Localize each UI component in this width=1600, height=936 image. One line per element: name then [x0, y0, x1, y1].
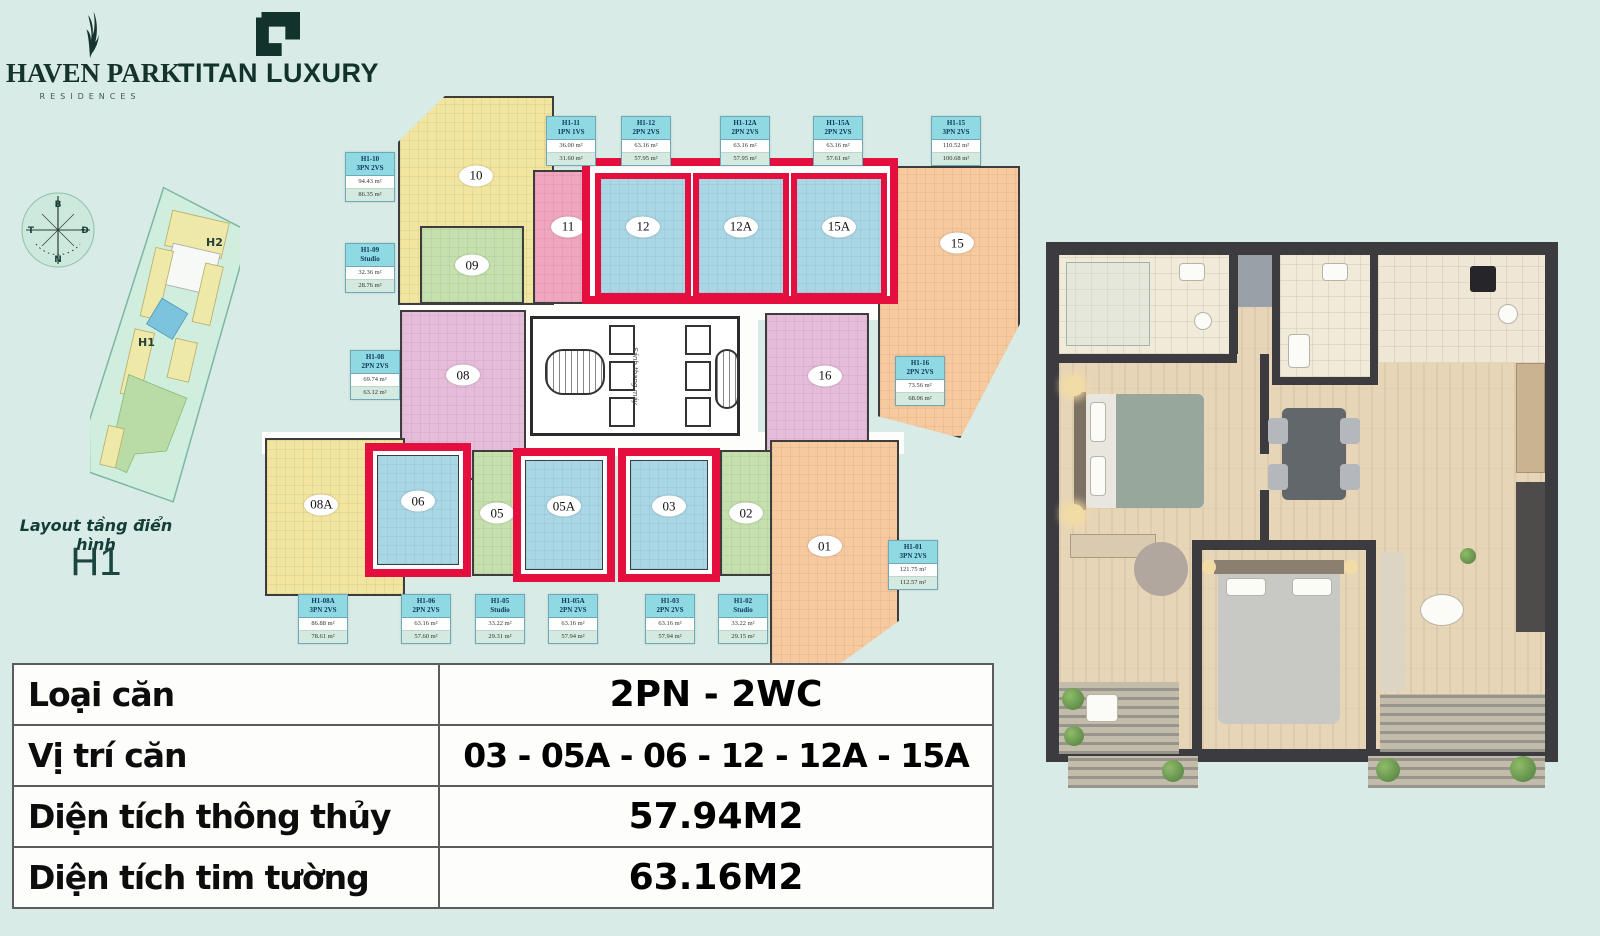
toilet: [1179, 263, 1205, 281]
badge-area-net: 57.95 m²: [721, 153, 769, 165]
wall: [1272, 377, 1378, 385]
site-map-label-h2: H2: [206, 236, 223, 249]
unit-info-badge-H1-12A: H1-12A2PN 2VS63.16 m²57.95 m²: [720, 116, 770, 166]
unit-01: 01: [770, 440, 899, 666]
badge-type: 2PN 2VS: [622, 128, 670, 137]
unit-number: 05A: [547, 496, 581, 517]
badge-area-net: 57.60 m²: [402, 631, 450, 643]
highlight-box-top: 12 12A 15A: [582, 158, 898, 304]
washer: [1086, 694, 1118, 722]
tv-console: [1516, 482, 1545, 632]
toilet: [1322, 263, 1348, 281]
unit-number: 12A: [724, 216, 758, 237]
badge-type: 2PN 2VS: [549, 606, 597, 615]
unit-number: 01: [808, 536, 842, 557]
badge-area-gross: 36.00 m²: [547, 140, 595, 153]
sink: [1194, 312, 1212, 330]
compass-icon: B N T Đ: [20, 190, 96, 270]
haven-park-logo: HAVEN PARK RESIDENCES: [6, 8, 174, 101]
badge-area-gross: 63.16 m²: [622, 140, 670, 153]
titan-luxury-logo: TITAN LUXURY: [178, 12, 378, 89]
site-map-label-h1: H1: [138, 336, 155, 349]
unit-info-badge-H1-08A: H1-08A3PN 2VS86.88 m²78.61 m²: [298, 594, 348, 644]
badge-type: 2PN 2VS: [351, 362, 399, 371]
haven-park-subtitle: RESIDENCES: [6, 92, 174, 101]
elevator-core: Sảnh thang máy: [530, 316, 740, 436]
pillow: [1292, 578, 1332, 596]
stairs-icon: [545, 349, 605, 395]
page: HAVEN PARK RESIDENCES TITAN LUXURY B N T…: [0, 0, 1600, 936]
unit-info-badge-H1-05A: H1-05A2PN 2VS63.16 m²57.94 m²: [548, 594, 598, 644]
tree-icon: [79, 8, 101, 58]
badge-area-net: 29.15 m²: [719, 631, 767, 643]
unit-03: 03: [630, 460, 708, 570]
badge-code: H1-09: [346, 246, 394, 255]
unit-number: 03: [652, 496, 686, 517]
wall: [1366, 540, 1376, 754]
unit-15A: 15A: [791, 173, 887, 299]
shower-glass: [1066, 262, 1150, 346]
badge-type: 2PN 2VS: [721, 128, 769, 137]
apartment-3d-render: [1046, 242, 1558, 788]
badge-code: H1-15A: [814, 119, 862, 128]
compass-west: T: [28, 226, 35, 236]
badge-area-net: 78.61 m²: [299, 631, 347, 643]
badge-type: Studio: [476, 606, 524, 615]
badge-code: H1-02: [719, 597, 767, 606]
badge-code: H1-03: [646, 597, 694, 606]
badge-code: H1-08: [351, 353, 399, 362]
badge-type: 2PN 2VS: [646, 606, 694, 615]
row-label: Diện tích tim tường: [14, 848, 440, 907]
rug: [1134, 542, 1188, 596]
badge-code: H1-10: [346, 155, 394, 164]
badge-area-gross: 63.16 m²: [646, 618, 694, 631]
headboard: [1074, 392, 1086, 510]
kitchen-cabinet: [1516, 363, 1545, 473]
badge-area-net: 31.60 m²: [547, 153, 595, 165]
badge-area-net: 112.57 m²: [889, 577, 937, 589]
lamp: [1344, 560, 1358, 574]
chair: [1268, 464, 1288, 490]
unit-number: 15: [940, 233, 974, 254]
badge-area-net: 68.06 m²: [896, 393, 944, 405]
unit-info-badge-H1-15A: H1-15A2PN 2VS63.16 m²57.61 m²: [813, 116, 863, 166]
badge-area-gross: 69.74 m²: [351, 374, 399, 387]
cooktop: [1470, 266, 1496, 292]
badge-area-gross: 63.16 m²: [402, 618, 450, 631]
unit-number: 02: [729, 503, 763, 524]
badge-area-net: 86.35 m²: [346, 189, 394, 201]
unit-info-badge-H1-02: H1-02Studio33.22 m²29.15 m²: [718, 594, 768, 644]
deck-area: [1380, 694, 1545, 752]
badge-code: H1-11: [547, 119, 595, 128]
badge-code: H1-08A: [299, 597, 347, 606]
badge-area-net: 28.76 m²: [346, 280, 394, 292]
plant: [1162, 760, 1184, 782]
row-value: 63.16M2: [440, 848, 992, 907]
unit-number: 08A: [304, 494, 338, 515]
unit-info-badge-H1-08: H1-082PN 2VS69.74 m²63.12 m²: [350, 350, 400, 400]
badge-type: 2PN 2VS: [402, 606, 450, 615]
badge-area-gross: 63.16 m²: [721, 140, 769, 153]
badge-area-net: 57.95 m²: [622, 153, 670, 165]
elevator-cell: [685, 325, 711, 355]
row-value: 57.94M2: [440, 787, 992, 846]
highlight-box-05A: 05A: [513, 448, 615, 582]
summary-table: Loại căn 2PN - 2WC Vị trí căn 03 - 05A -…: [12, 663, 994, 909]
elevator-cell: [685, 397, 711, 427]
badge-area-gross: 86.88 m²: [299, 618, 347, 631]
unit-number: 05: [480, 503, 514, 524]
badge-area-net: 57.94 m²: [646, 631, 694, 643]
badge-type: 3PN 2VS: [932, 128, 980, 137]
badge-code: H1-15: [932, 119, 980, 128]
bed-2: [1218, 574, 1340, 724]
unit-number: 15A: [822, 216, 856, 237]
block-name: H1: [16, 540, 176, 585]
chair: [1268, 418, 1288, 444]
badge-area-gross: 73.56 m²: [896, 380, 944, 393]
badge-type: 3PN 2VS: [346, 164, 394, 173]
unit-number: 16: [808, 365, 842, 386]
chair: [1340, 464, 1360, 490]
unit-info-badge-H1-11: H1-111PN 1VS36.00 m²31.60 m²: [546, 116, 596, 166]
compass-east: Đ: [81, 226, 89, 236]
row-label: Vị trí căn: [14, 726, 440, 785]
lamp: [1202, 560, 1216, 574]
unit-info-badge-H1-09: H1-09Studio32.36 m²28.76 m²: [345, 243, 395, 293]
table-row: Vị trí căn 03 - 05A - 06 - 12 - 12A - 15…: [14, 726, 992, 787]
badge-area-gross: 110.52 m²: [932, 140, 980, 153]
badge-code: H1-01: [889, 543, 937, 552]
stairs-icon: [715, 349, 739, 409]
unit-number: 11: [551, 216, 585, 237]
compass-south: N: [54, 255, 62, 265]
plant: [1510, 756, 1536, 782]
table-row: Diện tích tim tường 63.16M2: [14, 848, 992, 907]
plant: [1064, 726, 1084, 746]
badge-type: Studio: [346, 255, 394, 264]
unit-info-badge-H1-16: H1-162PN 2VS73.56 m²68.06 m²: [895, 356, 945, 406]
lamp: [1064, 376, 1084, 396]
row-value: 2PN - 2WC: [440, 665, 992, 724]
unit-09: 09: [420, 226, 524, 304]
plant: [1062, 688, 1084, 710]
sofa: [1380, 552, 1406, 692]
plant: [1460, 548, 1476, 564]
badge-type: 1PN 1VS: [547, 128, 595, 137]
floor-plan: 10 09 11 15 08 16 08A 05 02 01: [250, 88, 1020, 668]
kitchen: [1378, 255, 1545, 363]
unit-05A: 05A: [525, 460, 603, 570]
unit-12A: 12A: [693, 173, 789, 299]
wall: [1059, 354, 1237, 363]
highlight-box-03: 03: [618, 448, 720, 582]
wall: [1272, 255, 1280, 385]
unit-12: 12: [595, 173, 691, 299]
shaft: [1238, 255, 1272, 307]
pillow: [1090, 402, 1106, 442]
badge-code: H1-12: [622, 119, 670, 128]
unit-number: 12: [626, 216, 660, 237]
elevator-cell: [685, 361, 711, 391]
badge-type: 2PN 2VS: [814, 128, 862, 137]
wall: [1370, 255, 1378, 385]
badge-area-net: 63.12 m²: [351, 387, 399, 399]
badge-area-gross: 121.75 m²: [889, 564, 937, 577]
row-value: 03 - 05A - 06 - 12 - 12A - 15A: [440, 726, 992, 785]
badge-code: H1-05A: [549, 597, 597, 606]
coffee-table: [1420, 594, 1464, 626]
unit-number: 08: [446, 365, 480, 386]
badge-area-gross: 33.22 m²: [719, 618, 767, 631]
badge-type: 3PN 2VS: [889, 552, 937, 561]
unit-06: 06: [377, 455, 459, 565]
badge-code: H1-05: [476, 597, 524, 606]
badge-area-gross: 33.22 m²: [476, 618, 524, 631]
badge-area-net: 57.94 m²: [549, 631, 597, 643]
badge-area-net: 100.68 m²: [932, 153, 980, 165]
badge-area-net: 29.31 m²: [476, 631, 524, 643]
compass-north: B: [55, 200, 62, 210]
badge-code: H1-12A: [721, 119, 769, 128]
site-map: H2 H1: [90, 186, 240, 516]
kitchen-sink: [1498, 304, 1518, 324]
badge-code: H1-06: [402, 597, 450, 606]
wall: [1192, 540, 1376, 550]
row-label: Loại căn: [14, 665, 440, 724]
wall: [1229, 255, 1238, 354]
plant: [1376, 758, 1400, 782]
badge-code: H1-16: [896, 359, 944, 368]
unit-number: 06: [401, 491, 435, 512]
wall: [1192, 540, 1202, 754]
unit-info-badge-H1-01: H1-013PN 2VS121.75 m²112.57 m²: [888, 540, 938, 590]
highlight-box-06: 06: [365, 443, 471, 577]
badge-area-gross: 63.16 m²: [814, 140, 862, 153]
unit-02: 02: [720, 450, 772, 576]
duvet: [1116, 394, 1204, 508]
bathtub: [1288, 334, 1310, 368]
badge-area-net: 57.61 m²: [814, 153, 862, 165]
unit-info-badge-H1-06: H1-062PN 2VS63.16 m²57.60 m²: [401, 594, 451, 644]
haven-park-title: HAVEN PARK: [6, 58, 174, 89]
pillow: [1226, 578, 1266, 596]
dining-table: [1282, 408, 1346, 500]
table-row: Loại căn 2PN - 2WC: [14, 665, 992, 726]
headboard: [1214, 560, 1344, 574]
unit-number: 09: [455, 255, 489, 276]
badge-type: 2PN 2VS: [896, 368, 944, 377]
unit-info-badge-H1-05: H1-05Studio33.22 m²29.31 m²: [475, 594, 525, 644]
titan-mark-icon: [256, 12, 300, 56]
badge-area-gross: 94.43 m²: [346, 176, 394, 189]
badge-type: 3PN 2VS: [299, 606, 347, 615]
unit-info-badge-H1-03: H1-032PN 2VS63.16 m²57.94 m²: [645, 594, 695, 644]
pillow: [1090, 456, 1106, 496]
badge-type: Studio: [719, 606, 767, 615]
badge-area-gross: 63.16 m²: [549, 618, 597, 631]
chair: [1340, 418, 1360, 444]
row-label: Diện tích thông thủy: [14, 787, 440, 846]
core-label: Sảnh thang máy: [631, 347, 639, 405]
unit-number: 10: [459, 165, 493, 186]
badge-area-gross: 32.36 m²: [346, 267, 394, 280]
unit-info-badge-H1-15: H1-153PN 2VS110.52 m²100.68 m²: [931, 116, 981, 166]
titan-luxury-title: TITAN LUXURY: [178, 58, 378, 89]
lamp: [1064, 504, 1084, 524]
table-row: Diện tích thông thủy 57.94M2: [14, 787, 992, 848]
unit-info-badge-H1-10: H1-103PN 2VS94.43 m²86.35 m²: [345, 152, 395, 202]
unit-info-badge-H1-12: H1-122PN 2VS63.16 m²57.95 m²: [621, 116, 671, 166]
